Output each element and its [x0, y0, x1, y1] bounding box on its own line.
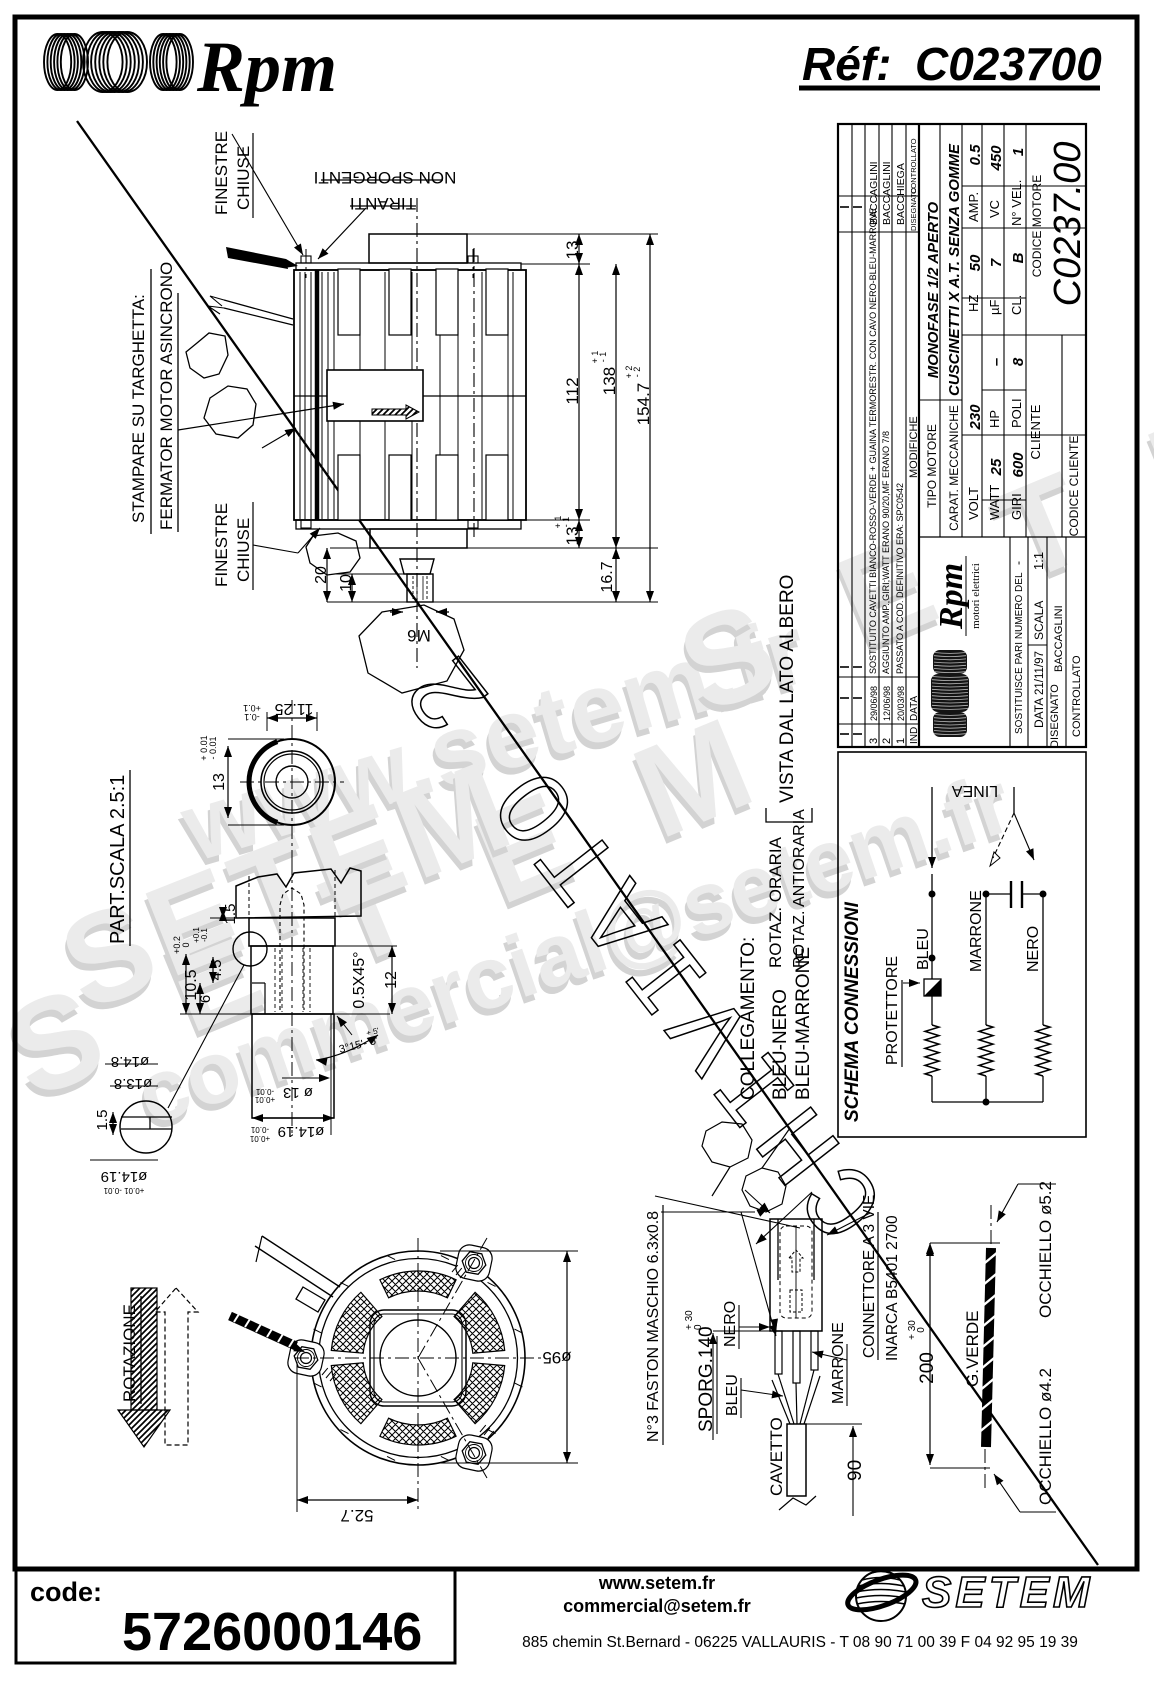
svg-text:OCCHIELLO ø4.2: OCCHIELLO ø4.2 — [1036, 1368, 1055, 1505]
svg-text:Rpm: Rpm — [933, 563, 970, 630]
svg-text:20: 20 — [313, 566, 330, 584]
svg-text:B: B — [1010, 252, 1027, 263]
svg-text:3: 3 — [868, 738, 880, 744]
svg-text:SOSTITUITO CAVETTI BIANCO-ROSS: SOSTITUITO CAVETTI BIANCO-ROSSO-VERDE + … — [868, 208, 878, 674]
svg-text:1: 1 — [895, 738, 907, 744]
svg-text:12/06/98: 12/06/98 — [882, 686, 892, 721]
svg-text:6: 6 — [197, 995, 214, 1003]
svg-text:SETEM: SETEM — [922, 1568, 1094, 1617]
svg-text:AGGIUNTO AMP.,GIRI;WATT ERANO: AGGIUNTO AMP.,GIRI;WATT ERANO 90/20,MF E… — [881, 431, 891, 674]
svg-text:ø 13: ø 13 — [283, 1084, 313, 1101]
svg-text:90: 90 — [845, 1460, 866, 1481]
svg-text:0.5X45°: 0.5X45° — [351, 951, 368, 1008]
svg-text:11.25: 11.25 — [274, 700, 313, 717]
svg-text:BACCAGLINI: BACCAGLINI — [1053, 605, 1065, 672]
svg-text:NON SPORGENTI: NON SPORGENTI — [314, 168, 457, 187]
svg-text:STAMPARE SU TARGHETTA:: STAMPARE SU TARGHETTA: — [129, 294, 148, 523]
svg-text:+0.01: +0.01 — [254, 1095, 275, 1104]
svg-text:154.7: 154.7 — [634, 383, 653, 426]
svg-text:µF: µF — [987, 300, 1002, 315]
svg-text:PROTETTORE: PROTETTORE — [884, 956, 901, 1065]
svg-text:CUSCINETTI X A.T. SENZA GOMME: CUSCINETTI X A.T. SENZA GOMME — [946, 143, 963, 396]
svg-text:HZ: HZ — [966, 295, 981, 312]
svg-text:MONOFASE 1/2 APERTO: MONOFASE 1/2 APERTO — [925, 201, 942, 378]
svg-text:COLLEGAMENTO:: COLLEGAMENTO: — [738, 937, 759, 1100]
svg-text:+0.01: +0.01 — [249, 1134, 270, 1143]
svg-text:-0.1: -0.1 — [200, 928, 209, 942]
svg-text:0.5: 0.5 — [967, 144, 984, 166]
svg-text:1.5: 1.5 — [222, 904, 239, 925]
svg-text:12: 12 — [383, 971, 400, 989]
svg-text:CAVETTO: CAVETTO — [767, 1417, 786, 1496]
svg-text:0: 0 — [916, 1327, 927, 1333]
svg-text:MARRONE: MARRONE — [968, 890, 985, 972]
svg-text:motori elettrici: motori elettrici — [970, 563, 982, 629]
svg-text:OCCHIELLO ø5.2: OCCHIELLO ø5.2 — [1036, 1181, 1055, 1318]
svg-text:1.5: 1.5 — [94, 1110, 111, 1131]
svg-text:BLEU-NERO: BLEU-NERO — [770, 989, 791, 1100]
svg-text:G.VERDE: G.VERDE — [963, 1310, 982, 1387]
svg-text:BACCAGLINI: BACCAGLINI — [881, 161, 893, 225]
svg-text:- 1: - 1 — [561, 517, 571, 528]
svg-text:52.7: 52.7 — [340, 1506, 373, 1525]
svg-text:AMP.: AMP. — [966, 192, 981, 222]
svg-text:-0.01: -0.01 — [250, 1125, 269, 1134]
svg-text:code:: code: — [30, 1577, 102, 1607]
svg-text:CONNETTORE A 3 VIE: CONNETTORE A 3 VIE — [861, 1195, 878, 1358]
svg-text:+0.01 -0.01: +0.01 -0.01 — [103, 1186, 144, 1195]
svg-text:1:1: 1:1 — [1031, 552, 1046, 570]
svg-text:CHIUSE: CHIUSE — [234, 146, 253, 210]
svg-text:FINESTRE: FINESTRE — [212, 503, 231, 587]
svg-text:21/11/97: 21/11/97 — [1034, 651, 1046, 695]
svg-text:- 0.01: - 0.01 — [208, 736, 218, 759]
svg-text:138: 138 — [600, 367, 619, 395]
svg-text:ø13.8: ø13.8 — [114, 1075, 152, 1092]
svg-text:ROTAZ. ANTIORARIA: ROTAZ. ANTIORARIA — [791, 809, 808, 968]
svg-text:PART.SCALA 2.5:1: PART.SCALA 2.5:1 — [107, 775, 129, 944]
svg-text:SPORG.140: SPORG.140 — [696, 1326, 717, 1432]
svg-text:ø14.19: ø14.19 — [278, 1123, 325, 1140]
svg-text:ø14.19: ø14.19 — [101, 1168, 148, 1185]
svg-text:50: 50 — [967, 254, 984, 271]
svg-text:DATA: DATA — [1032, 698, 1046, 728]
svg-text:NERO: NERO — [1025, 926, 1042, 972]
svg-text:BLEU: BLEU — [915, 928, 932, 970]
svg-text:www.setem.fr: www.setem.fr — [598, 1573, 715, 1593]
svg-text:DISEGNATO: DISEGNATO — [1049, 684, 1061, 748]
svg-text:TIPO MOTORE: TIPO MOTORE — [925, 424, 939, 508]
svg-text:- 2: - 2 — [632, 367, 642, 378]
svg-text:Rpm: Rpm — [196, 27, 337, 107]
svg-text:INARCA B5401 2700: INARCA B5401 2700 — [884, 1215, 901, 1361]
svg-text:ROTAZ. ORARIA: ROTAZ. ORARIA — [766, 836, 785, 968]
svg-text:MARRONE: MARRONE — [830, 1322, 847, 1404]
svg-text:600: 600 — [1010, 452, 1027, 478]
svg-text:5726000146: 5726000146 — [122, 1602, 422, 1662]
svg-text:SCHEMA CONNESSIONI: SCHEMA CONNESSIONI — [842, 901, 863, 1122]
svg-text:C023700: C023700 — [915, 38, 1102, 90]
svg-text:HP: HP — [987, 410, 1002, 428]
svg-text:DATA: DATA — [909, 695, 920, 721]
svg-text:13: 13 — [211, 773, 228, 791]
svg-text:8: 8 — [1010, 357, 1027, 366]
svg-text:CHIUSE: CHIUSE — [234, 518, 253, 582]
svg-text:WATT: WATT — [987, 485, 1002, 520]
svg-text:SCALA: SCALA — [1032, 601, 1046, 640]
svg-text:M6: M6 — [407, 626, 431, 645]
svg-text:CONTROLLATO: CONTROLLATO — [909, 138, 918, 194]
svg-text:CARAT. MECCANICHE: CARAT. MECCANICHE — [947, 405, 961, 531]
svg-text:ø14.8: ø14.8 — [111, 1053, 149, 1070]
svg-text:TIRANTI: TIRANTI — [350, 194, 416, 213]
svg-text:10: 10 — [338, 574, 355, 592]
svg-text:0: 0 — [181, 942, 191, 947]
svg-text:885 chemin St.Bernard - 0622: 885 chemin St.Bernard - 06225 VALLAURIS … — [522, 1634, 1078, 1651]
svg-text:commercial@setem.fr: commercial@setem.fr — [563, 1596, 751, 1616]
svg-text:LINEA: LINEA — [952, 782, 999, 799]
svg-text:7: 7 — [988, 258, 1005, 267]
svg-text:CODICE CLIENTE: CODICE CLIENTE — [1067, 436, 1081, 537]
svg-text:MODIFICHE: MODIFICHE — [908, 416, 920, 478]
svg-text:29/06/98: 29/06/98 — [869, 686, 879, 721]
svg-text:CODICE MOTORE: CODICE MOTORE — [1030, 175, 1044, 277]
svg-text:-0.01: -0.01 — [255, 1087, 274, 1096]
svg-text:200: 200 — [917, 1352, 938, 1384]
svg-text:C0237.00: C0237.00 — [1047, 142, 1089, 307]
svg-text:CL.: CL. — [1009, 295, 1024, 315]
svg-text:VOLT: VOLT — [966, 487, 981, 520]
svg-text:VISTA DAL LATO ALBERO: VISTA DAL LATO ALBERO — [777, 575, 798, 803]
svg-text:GIRI: GIRI — [1009, 493, 1024, 520]
svg-text:450: 450 — [988, 145, 1005, 172]
svg-text:+0.1: +0.1 — [243, 703, 261, 713]
svg-text:- 1: - 1 — [598, 352, 608, 363]
svg-text:PASSATO A COD. DEFINITIVO ERA:: PASSATO A COD. DEFINITIVO ERA: SPC0542 — [895, 483, 905, 674]
svg-text:BACCAGLINI: BACCAGLINI — [868, 161, 880, 225]
svg-text:230: 230 — [967, 404, 984, 431]
svg-text:N°3 FASTON MASCHIO 6.3x0.8: N°3 FASTON MASCHIO 6.3x0.8 — [645, 1211, 662, 1442]
svg-text:CONTROLLATO: CONTROLLATO — [1071, 655, 1083, 737]
svg-text:13: 13 — [563, 527, 582, 546]
svg-text:Réf:: Réf: — [802, 38, 891, 90]
svg-text:FINESTRE: FINESTRE — [212, 131, 231, 215]
svg-text:ø95: ø95 — [542, 1348, 571, 1367]
svg-text:1: 1 — [1010, 148, 1027, 156]
svg-text:POLI: POLI — [1009, 398, 1024, 428]
svg-text:BLEU-MARRONE: BLEU-MARRONE — [793, 947, 814, 1100]
svg-text:NERO: NERO — [722, 1301, 739, 1347]
svg-text:112: 112 — [563, 377, 582, 404]
svg-text:VC: VC — [987, 200, 1002, 218]
svg-text:IND: IND — [909, 727, 920, 744]
svg-text:13: 13 — [563, 241, 582, 260]
svg-text:4.5: 4.5 — [208, 960, 225, 981]
svg-text:BLEU: BLEU — [724, 1374, 741, 1416]
svg-text:20/03/98: 20/03/98 — [896, 686, 906, 721]
svg-text:0: 0 — [693, 1324, 704, 1330]
svg-text:16.7: 16.7 — [599, 561, 616, 592]
svg-text:FERMATOR MOTOR ASINCRONO: FERMATOR MOTOR ASINCRONO — [157, 262, 176, 530]
svg-text:BACCHIEGA: BACCHIEGA — [895, 163, 907, 225]
svg-text:2: 2 — [881, 738, 893, 744]
svg-text:N° VEL.: N° VEL. — [1009, 180, 1024, 226]
svg-text:SOSTITUISCE PARI NUMERO DEL: SOSTITUISCE PARI NUMERO DEL — [1014, 572, 1025, 734]
svg-text:CLIENTE: CLIENTE — [1028, 404, 1043, 459]
svg-text:-0.1: -0.1 — [244, 712, 260, 722]
svg-text:–: – — [988, 358, 1005, 366]
svg-text:25: 25 — [988, 458, 1005, 476]
svg-text:-: - — [1011, 561, 1025, 565]
